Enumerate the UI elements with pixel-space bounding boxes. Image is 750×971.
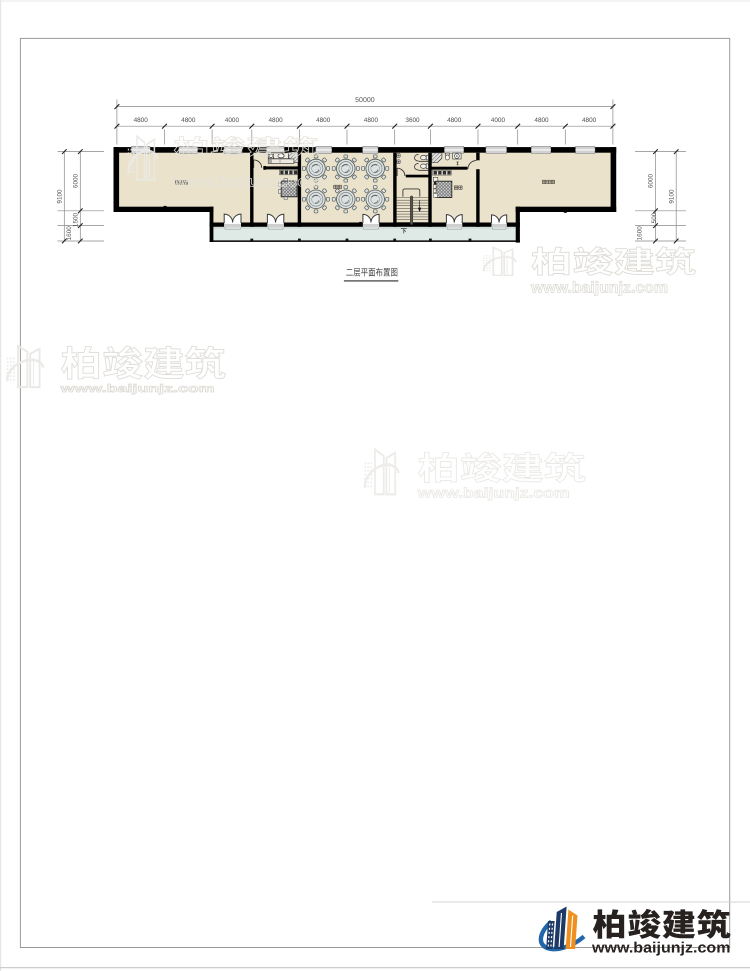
svg-text:4800: 4800 [181,117,196,124]
svg-text:1500: 1500 [73,212,80,227]
svg-text:50000: 50000 [355,97,375,104]
svg-text:4800: 4800 [447,117,462,124]
svg-text:4800: 4800 [582,117,597,124]
svg-text:4800: 4800 [534,117,549,124]
svg-text:www.baijunjz.com: www.baijunjz.com [530,280,668,297]
svg-text:4800: 4800 [268,117,283,124]
svg-text:www.baijunjz.com: www.baijunjz.com [59,383,215,395]
svg-text:6000: 6000 [648,173,655,188]
svg-text:9100: 9100 [57,189,64,204]
svg-text:6000: 6000 [73,173,80,188]
svg-text:www.baijunjz.com: www.baijunjz.com [172,174,323,191]
svg-text:www.baijunjz.com: www.baijunjz.com [416,485,569,501]
svg-text:3600: 3600 [405,117,420,124]
svg-text:4000: 4000 [225,117,240,124]
svg-text:4800: 4800 [134,117,149,124]
svg-text:1600: 1600 [66,226,73,241]
svg-text:www.baijunjz.com: www.baijunjz.com [591,940,731,957]
svg-text:4000: 4000 [491,117,506,124]
svg-text:500: 500 [651,212,658,223]
svg-text:9100: 9100 [668,189,675,204]
svg-text:1600: 1600 [637,226,644,241]
svg-text:4800: 4800 [316,117,331,124]
svg-text:4800: 4800 [364,117,379,124]
